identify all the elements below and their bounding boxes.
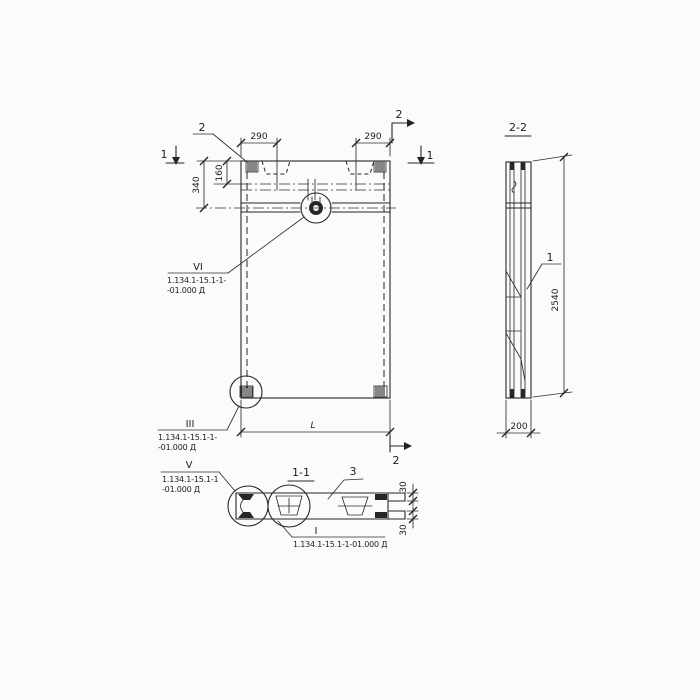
cut-mark-1-left: 1: [161, 146, 185, 165]
cut-1-right-text: 1: [427, 149, 434, 162]
item-label-2: 2: [193, 121, 247, 162]
callout-v-line1: 1.134.1-15.1-1: [162, 475, 219, 484]
shear-key: [506, 271, 525, 381]
cut-1-left-text: 1: [161, 148, 168, 161]
callout-vi-line1: 1.134.1-15.1-1-: [167, 276, 226, 285]
dim-200-text: 200: [510, 422, 527, 432]
callout-v: V 1.134.1-15.1-1 -01.000 Д: [161, 460, 235, 494]
dim-340-text: 340: [192, 176, 202, 193]
callout-iii: III 1.134.1-15.1-1- -01.000 Д: [158, 406, 239, 452]
callout-vi-num: VI: [193, 262, 203, 273]
lifting-loop-bottom-left: [240, 386, 253, 397]
section-2-2: 2-2 1: [497, 121, 572, 438]
callout-i-num: I: [315, 526, 318, 537]
callout-iii-num: III: [186, 419, 195, 430]
end-recess-right: [375, 493, 405, 519]
cut-2-bottom-text: 2: [393, 454, 400, 467]
dim-30-bottom-text: 30: [399, 524, 409, 536]
panel-drawing: VI 1.134.1-15.1-1- -01.000 Д III 1.134.1…: [0, 0, 700, 700]
item-label-1: 1: [527, 251, 561, 289]
cut-mark-2-bottom: 2: [390, 436, 412, 467]
callout-iii-line2: -01.000 Д: [158, 443, 196, 452]
drawing-sheet: VI 1.134.1-15.1-1- -01.000 Д III 1.134.1…: [0, 0, 700, 700]
callout-vi-line2: -01.000 Д: [167, 286, 205, 295]
callout-i: I 1.134.1-15.1-1-01.000 Д: [278, 521, 387, 549]
item-label-2-text: 2: [199, 121, 206, 134]
section-1-1-title: 1-1: [292, 466, 310, 479]
dim-200: 200: [497, 400, 540, 438]
keystone-void-circled: [268, 485, 310, 527]
keystone-void-middle: [338, 497, 372, 515]
recess-left: [262, 161, 290, 174]
lifting-loop-top-left: [246, 161, 258, 172]
cut-mark-2-top: 2: [392, 108, 415, 143]
callout-v-num: V: [186, 460, 193, 471]
end-key-left: [228, 486, 268, 526]
dim-length: L: [237, 400, 394, 437]
callout-iii-line1: 1.134.1-15.1-1-: [158, 433, 217, 442]
dim-160-text: 160: [215, 164, 225, 181]
section-2-2-title: 2-2: [509, 121, 527, 134]
dim-290-left-text: 290: [250, 132, 267, 142]
dim-30-top-text: 30: [399, 481, 409, 493]
dim-2540: 2540: [533, 153, 572, 397]
recess-right: [346, 161, 374, 174]
front-view: VI 1.134.1-15.1-1- -01.000 Д III 1.134.1…: [158, 108, 434, 467]
item-label-3: 3: [328, 465, 363, 499]
item-label-3-text: 3: [350, 465, 357, 478]
dim-length-text: L: [310, 421, 315, 431]
item-label-1-text: 1: [547, 251, 554, 264]
cut-2-top-text: 2: [396, 108, 403, 121]
dim-30-top: 30: [399, 481, 418, 506]
callout-v-line2: -01.000 Д: [162, 485, 200, 494]
section-1-1: 1-1 3: [161, 460, 418, 549]
callout-vi: VI 1.134.1-15.1-1- -01.000 Д: [167, 217, 304, 295]
callout-i-line1: 1.134.1-15.1-1-01.000 Д: [293, 540, 387, 549]
lifting-loop-bottom-right: [374, 386, 387, 397]
lifting-loop-top-right: [374, 161, 386, 172]
cut-mark-1-right: 1: [408, 146, 434, 165]
dim-340: 340: [192, 157, 208, 212]
dim-290-right-text: 290: [364, 132, 381, 142]
dim-2540-text: 2540: [551, 288, 561, 311]
